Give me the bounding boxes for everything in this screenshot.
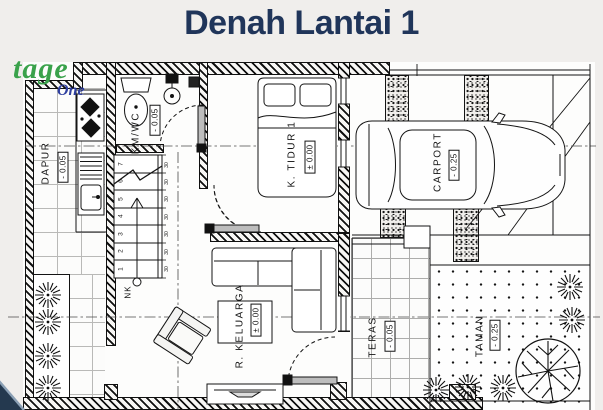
watermark-suffix: One [57,82,85,100]
tread-dim-3: 30 [164,196,170,202]
elev-dapur: - 0.05 [58,151,69,182]
stair-number-3: 3 [118,232,125,236]
stair-number-4: 4 [118,214,125,218]
elev-taman: - 0.25 [490,319,501,350]
stair-number-2: 2 [118,249,125,253]
elev-rkeluarga: ± 0.00 [251,303,262,336]
label-taman: TAMAN [475,315,486,357]
bedroom-door [205,185,261,233]
tread-dim-6: 30 [164,249,170,255]
floorplan-page: DAPUR - 0.05 KM/WC - 0.05 K. TIDUR 1 ± 0… [0,0,603,410]
stair-number-7: 7 [118,162,125,166]
page-title: Denah Lantai 1 [0,4,603,43]
label-teras: TERAS [368,316,379,357]
plan-linework [0,0,603,410]
tread-dim-1: 30 [164,162,170,168]
carport-boundary-lines [352,64,590,410]
tread-dim-5: 30 [164,231,170,237]
label-dapur: DAPUR [41,141,52,184]
elev-carport: - 0.25 [449,149,460,180]
label-ktidur1: K. TIDUR 1 [287,121,298,188]
elev-ktidur1: ± 0.00 [305,140,316,173]
stair-number-6: 6 [118,179,125,183]
stairs-direction-label: NK [124,285,133,298]
window-2 [338,140,350,167]
tread-dim-2: 30 [164,179,170,185]
kmwc-door [160,105,206,152]
tree-icon [516,339,580,403]
armchair-icon [153,306,211,364]
tread-dim-4: 30 [164,214,170,220]
stair-number-5: 5 [118,197,125,201]
floor-drain-icon [189,77,199,87]
tread-dim-7: 30 [164,266,170,272]
label-rkeluarga: R. KELUARGA [235,284,246,369]
elev-teras: - 0.05 [385,320,396,351]
tv-cabinet-icon [207,384,283,404]
shower-icon [164,74,180,104]
teras-taman-borders [352,226,590,410]
stove-icon [77,94,104,141]
corner-triangle [0,378,40,410]
family-door [283,337,337,385]
elev-kmwc: - 0.05 [150,104,161,135]
label-carport: CARPORT [433,132,444,192]
stair-number-1: 1 [118,267,125,271]
window-3 [338,296,350,331]
watermark-script: tage [13,52,69,86]
sink-icon [78,153,104,215]
window-1 [338,78,350,104]
taman-plants [423,274,585,403]
car-icon [356,113,565,217]
label-kmwc: KM/WC [131,112,142,154]
